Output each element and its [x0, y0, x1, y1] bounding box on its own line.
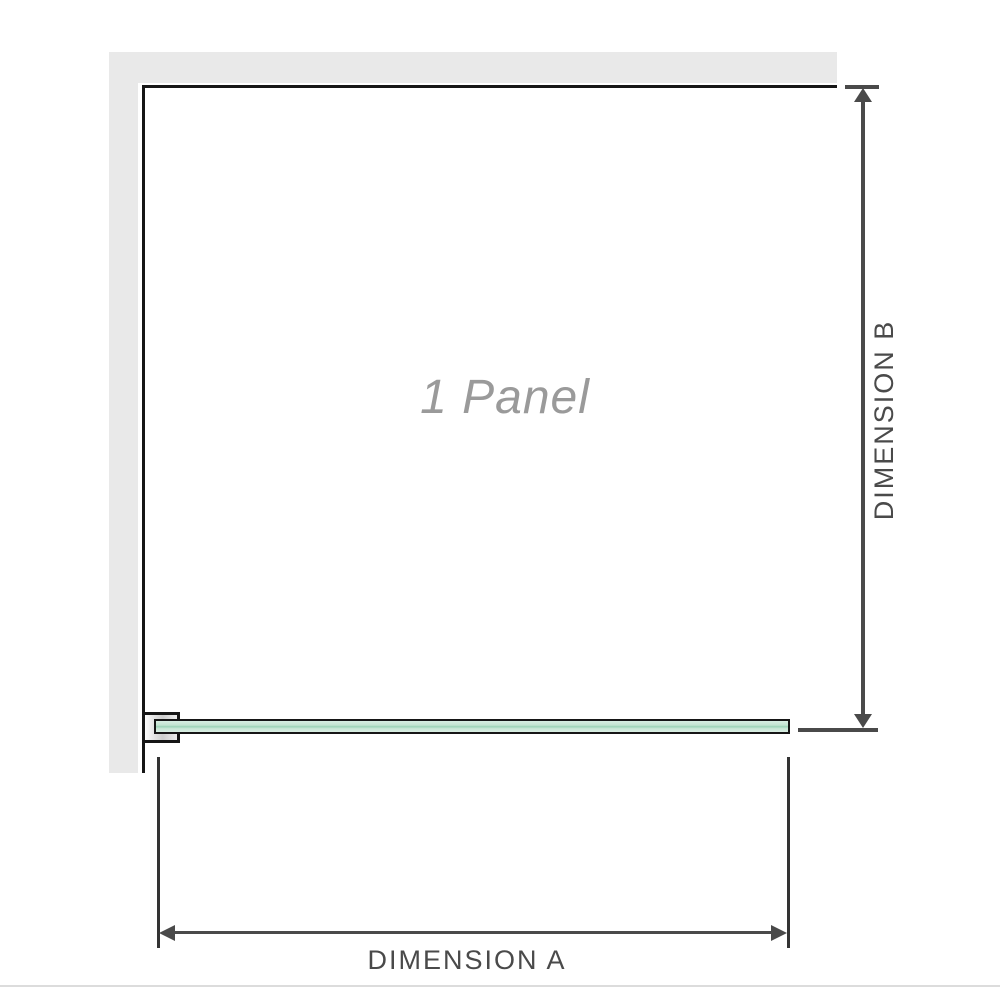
glass-panel [154, 719, 790, 734]
dimension-b-bottom-tick [798, 728, 878, 732]
dimension-b-label: DIMENSION B [869, 270, 899, 570]
dimension-a-line [173, 931, 773, 934]
panel-count-label: 1 Panel [355, 368, 655, 428]
dimension-a-right-tick [787, 757, 790, 948]
wall-top [109, 52, 837, 83]
arrow-right-icon [771, 925, 787, 941]
bottom-separator-line [0, 985, 1000, 987]
dimension-b-line [861, 99, 865, 716]
arrow-up-icon [854, 88, 872, 102]
wall-left [109, 52, 138, 773]
arrow-left-icon [159, 925, 175, 941]
dimension-a-label: DIMENSION A [317, 944, 617, 976]
arrow-down-icon [854, 714, 872, 728]
shower-panel-diagram: 1 Panel DIMENSION B DIMENSION A [0, 0, 1000, 1000]
dimension-a-left-tick [157, 757, 160, 948]
panel-left-edge-line [142, 85, 145, 773]
panel-top-edge-line [142, 85, 837, 88]
